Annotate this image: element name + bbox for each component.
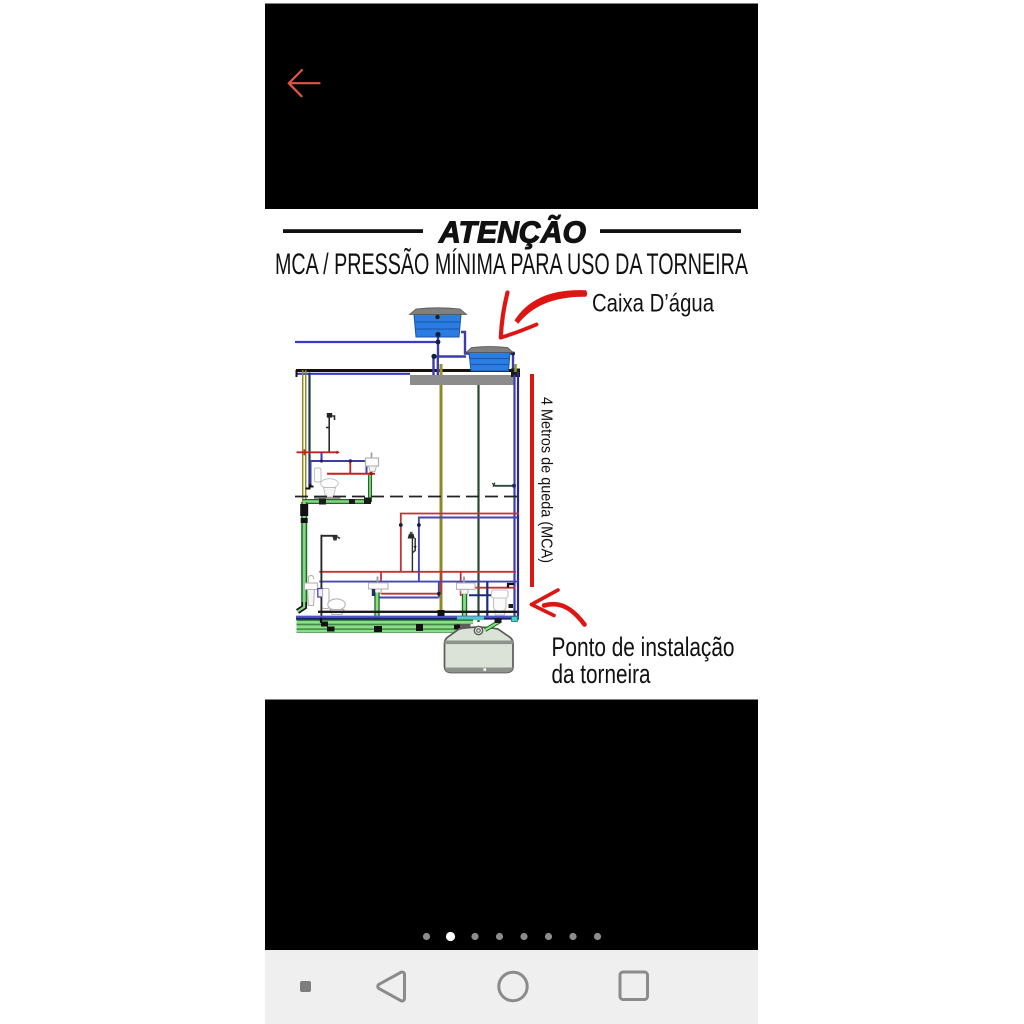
svg-text:Ponto de instalação: Ponto de instalação [552, 632, 735, 662]
svg-text:ATENÇÃO: ATENÇÃO [438, 215, 586, 250]
svg-text:4 Metros de queda (MCA): 4 Metros de queda (MCA) [538, 397, 555, 563]
svg-text:da torneira: da torneira [552, 659, 652, 689]
svg-text:Caixa D’água: Caixa D’água [592, 290, 714, 318]
svg-text:MCA / PRESSÃO MÍNIMA PARA USO: MCA / PRESSÃO MÍNIMA PARA USO DA TORNEIR… [275, 247, 748, 281]
